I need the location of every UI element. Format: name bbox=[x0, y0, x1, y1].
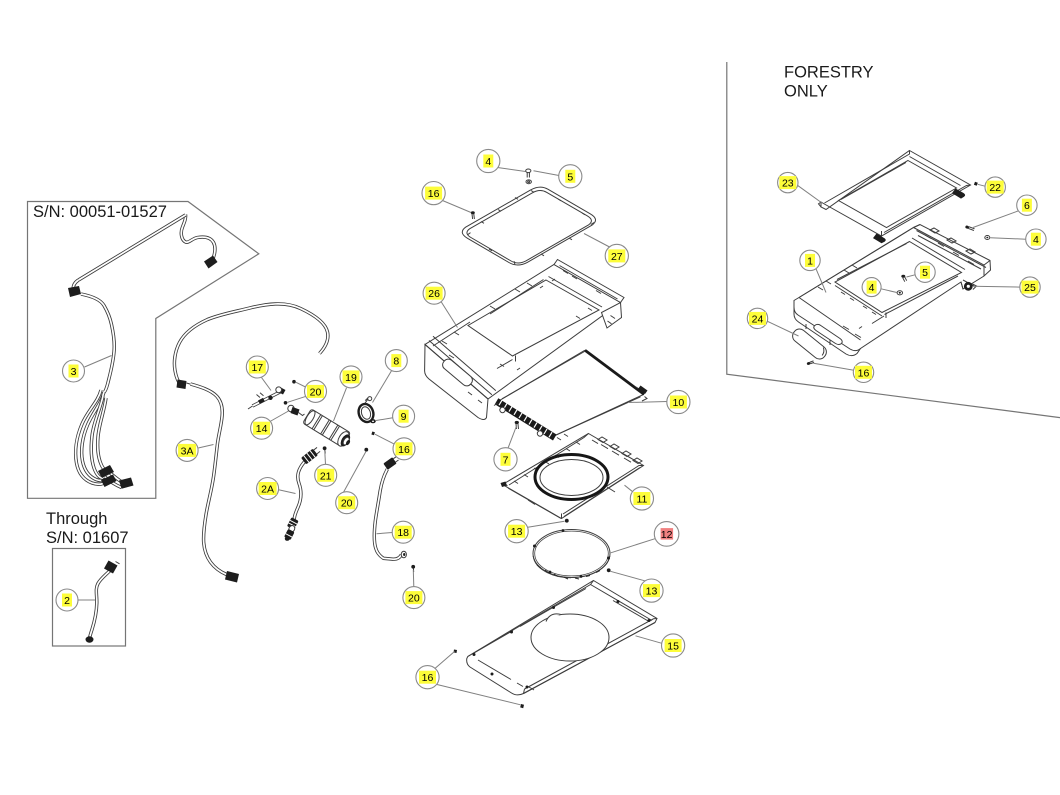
svg-text:9: 9 bbox=[401, 411, 407, 423]
svg-text:3A: 3A bbox=[181, 445, 194, 457]
svg-text:21: 21 bbox=[320, 470, 332, 482]
svg-text:15: 15 bbox=[667, 641, 679, 653]
svg-text:12: 12 bbox=[661, 529, 673, 541]
svg-text:23: 23 bbox=[782, 178, 794, 190]
svg-text:2A: 2A bbox=[261, 484, 274, 496]
svg-text:16: 16 bbox=[428, 188, 440, 200]
svg-text:S/N: 00051-01527: S/N: 00051-01527 bbox=[33, 203, 167, 221]
svg-text:Through: Through bbox=[46, 510, 107, 528]
svg-text:13: 13 bbox=[511, 526, 523, 538]
svg-text:5: 5 bbox=[922, 267, 928, 279]
svg-text:4: 4 bbox=[1033, 234, 1039, 246]
svg-text:13: 13 bbox=[646, 586, 658, 598]
svg-text:6: 6 bbox=[1024, 200, 1030, 212]
svg-text:ONLY: ONLY bbox=[784, 83, 828, 101]
svg-text:S/N: 01607: S/N: 01607 bbox=[46, 529, 129, 547]
svg-text:8: 8 bbox=[393, 356, 399, 368]
svg-text:16: 16 bbox=[858, 367, 870, 379]
svg-text:16: 16 bbox=[422, 672, 434, 684]
svg-text:16: 16 bbox=[398, 444, 410, 456]
svg-text:18: 18 bbox=[397, 527, 409, 539]
svg-text:FORESTRY: FORESTRY bbox=[784, 64, 874, 82]
svg-text:17: 17 bbox=[251, 362, 263, 374]
svg-text:2: 2 bbox=[64, 595, 70, 607]
svg-text:14: 14 bbox=[256, 423, 268, 435]
svg-text:5: 5 bbox=[567, 171, 573, 183]
svg-text:4: 4 bbox=[485, 156, 491, 168]
svg-text:20: 20 bbox=[341, 498, 353, 510]
svg-text:26: 26 bbox=[428, 288, 440, 300]
svg-text:22: 22 bbox=[989, 182, 1001, 194]
svg-text:20: 20 bbox=[310, 386, 322, 398]
svg-text:25: 25 bbox=[1024, 282, 1036, 294]
svg-text:19: 19 bbox=[345, 372, 357, 384]
svg-text:27: 27 bbox=[611, 251, 623, 263]
svg-text:7: 7 bbox=[503, 454, 509, 466]
svg-text:11: 11 bbox=[636, 494, 647, 506]
svg-text:24: 24 bbox=[752, 313, 764, 325]
svg-text:3: 3 bbox=[71, 366, 77, 378]
svg-text:1: 1 bbox=[807, 255, 813, 267]
svg-text:20: 20 bbox=[408, 593, 420, 605]
svg-text:4: 4 bbox=[869, 282, 875, 294]
svg-text:10: 10 bbox=[673, 397, 685, 409]
